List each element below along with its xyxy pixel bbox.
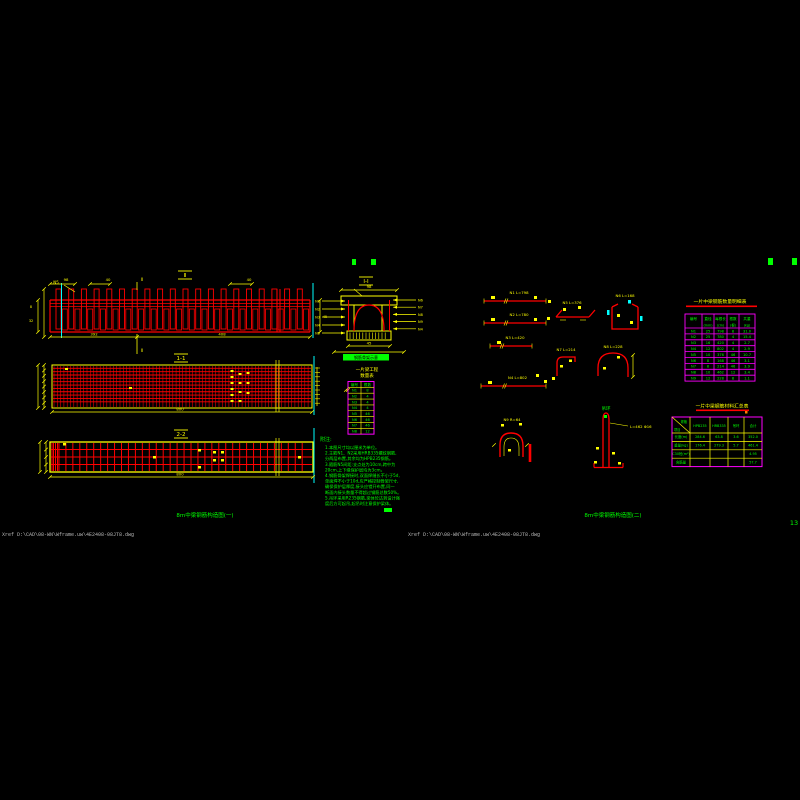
rect: [126, 309, 131, 330]
bar-mark: [63, 443, 66, 446]
cell: N9: [691, 377, 697, 381]
beam-elevation: 984040ⅡN5ⅡⅡ39240883245: [29, 271, 327, 354]
section-label: 1-1: [177, 356, 186, 362]
rect: [297, 289, 302, 329]
cell: 462: [717, 371, 724, 375]
green-tag: 钢筋骨架示意: [343, 354, 389, 361]
mini-table-title: 数量表: [360, 372, 374, 379]
diaphragm-mark: [239, 373, 242, 375]
cell: 46: [731, 353, 736, 357]
rect: [240, 309, 245, 330]
dim-text: L=462 Φ16: [630, 424, 652, 429]
rect: [75, 309, 80, 330]
corner: 项目: [674, 428, 680, 432]
path: [612, 304, 638, 329]
notes-title: 附注:: [320, 436, 332, 443]
path: [341, 300, 345, 303]
table-title: 一片中梁钢筋数量明细表: [694, 298, 747, 305]
dim-text: 32: [29, 319, 33, 323]
diaphragm-mark: [231, 388, 234, 390]
path: [556, 310, 595, 317]
dim-text: 800: [176, 472, 184, 477]
rect: [227, 309, 232, 330]
bar-mark: [617, 356, 620, 359]
path: [393, 306, 397, 309]
rect: [189, 309, 194, 330]
cell: 176.4: [695, 444, 705, 448]
cell: 3.6: [733, 435, 738, 439]
cell: 根数: [364, 382, 372, 387]
rect: [291, 309, 296, 330]
rect: [177, 309, 182, 330]
cell: N6: [352, 418, 358, 422]
diaphragm-mark: [231, 394, 234, 396]
cell: 31.0: [743, 329, 752, 333]
cell: 3.9: [744, 365, 750, 369]
diaphragm-mark: [231, 400, 234, 402]
line: [610, 423, 628, 426]
cell: 8: [732, 377, 735, 381]
rect: [215, 309, 220, 330]
rect: [69, 289, 74, 329]
cell: 12: [706, 377, 711, 381]
green-stamp: [371, 259, 376, 265]
cell: 376: [717, 353, 725, 357]
th: 直径: [704, 316, 712, 321]
cell: 含筋量: [676, 459, 687, 464]
cell: 5.7: [733, 444, 738, 448]
cell: 228: [717, 377, 725, 381]
path: [393, 313, 397, 316]
dim-text: 800: [176, 407, 184, 412]
rect: [278, 309, 283, 330]
bar-mark: [534, 296, 537, 299]
th: 每根长: [715, 316, 726, 321]
xref-path-right: Xref D:\CAD\08-WN\Wframe.uw\4E2408-08JT8…: [408, 532, 540, 538]
bar-mark: [213, 451, 216, 454]
rect: [164, 309, 169, 330]
material-summary-table: 一片中梁钢筋材料汇总表规格项目HPB235HRB335吊环合计长度(m)284.…: [672, 403, 762, 467]
rect: [56, 289, 61, 329]
rebar-callout: N6: [418, 299, 423, 303]
bar-mark: [596, 447, 599, 450]
path: [500, 433, 523, 457]
title-underline: [696, 410, 749, 412]
cyan-mark: [640, 316, 643, 321]
dim-text: 392: [90, 332, 98, 337]
bar-mark: [617, 314, 620, 317]
cell: N6: [691, 359, 697, 363]
cell: 3.1: [744, 359, 750, 363]
bar-mark: [630, 321, 633, 324]
cell: N1: [352, 389, 357, 393]
rebar-callout: N8: [418, 313, 423, 317]
rebar-callout: N5: [315, 332, 320, 336]
cut-mark: Ⅱ: [141, 348, 143, 353]
shape-label: N6 L=168: [615, 293, 635, 298]
cell: 16: [706, 341, 711, 345]
line: [64, 285, 75, 292]
bar-mark: [563, 308, 566, 311]
dim-text: 40: [247, 277, 252, 282]
section-label: 2-2: [177, 432, 186, 438]
cell: N3: [352, 400, 357, 404]
xref-path-left: Xref D:\CAD\08-WN\Wframe.uw\4E2408-08JT8…: [2, 532, 134, 538]
cell: 10.7: [743, 353, 751, 357]
bar-mark: [213, 459, 216, 462]
diaphragm-mark: [247, 392, 250, 394]
rebar-callout: N2: [315, 308, 320, 312]
rect: [208, 289, 213, 329]
cell: 4: [366, 406, 369, 410]
green-stamp: [352, 259, 356, 265]
rect: [170, 289, 175, 329]
shape-label: N3 L=420: [505, 335, 525, 340]
shape-label: N4 L=802: [508, 375, 528, 380]
cell: 25: [706, 335, 711, 339]
rect: [253, 309, 258, 330]
rebar-callout: N3: [315, 316, 320, 320]
dim-text: 98: [64, 277, 69, 282]
cell: 46: [365, 412, 370, 416]
cell: 8: [366, 389, 369, 393]
rect: [151, 309, 156, 330]
diaphragm-mark: [231, 382, 234, 384]
cell: 10: [706, 353, 711, 357]
shape-label: N7 L=214: [556, 347, 576, 352]
bar-mark: [552, 377, 555, 380]
cell: 4: [366, 394, 369, 398]
cell: 46: [731, 359, 736, 363]
cell: N8: [352, 430, 358, 434]
rebar-callout: N1: [315, 300, 320, 304]
cell: 25: [706, 329, 711, 333]
th: 吊环: [733, 424, 740, 428]
path: [557, 357, 575, 376]
rect: [183, 289, 188, 329]
diaphragm-mark: [239, 382, 242, 384]
rect: [221, 289, 226, 329]
rect: [341, 296, 397, 305]
cell: 57.7: [749, 460, 757, 464]
bar-mark: [153, 456, 156, 459]
cad-canvas: 984040ⅡN5ⅡⅡ392408832451-18002-2800Ⅰ-ⅠN1N…: [0, 0, 800, 800]
orange-mark: [745, 411, 748, 414]
th: (根): [730, 323, 736, 328]
shape-label: N2 L=780: [509, 312, 529, 317]
cell: C30砼(m³): [672, 451, 690, 456]
green-mark: [604, 415, 607, 418]
cell: 2.9: [744, 347, 750, 351]
cut-mark: Ⅱ: [141, 277, 143, 282]
bar-mark: [221, 451, 224, 454]
title-underline: [686, 306, 757, 308]
th: 合计: [750, 423, 757, 428]
bar-mark: [221, 459, 224, 462]
cell: 46: [731, 365, 736, 369]
bar-mark: [491, 296, 495, 299]
th: 根数: [729, 316, 737, 321]
lift-loop-label: 吊环: [602, 406, 611, 412]
shape-label: N8 L=228: [603, 344, 623, 349]
dim-text: 45: [367, 341, 372, 346]
shape-label: N5 L=376: [562, 300, 582, 305]
cell: 46: [365, 418, 370, 422]
cell: 编号: [351, 382, 359, 387]
dim-text: 40: [106, 277, 111, 282]
cell: 352.0: [748, 435, 758, 439]
path: [341, 308, 345, 311]
rect: [234, 289, 239, 329]
cell: N7: [352, 424, 357, 428]
cell: 4: [732, 341, 735, 345]
notes-line: 度后方可起吊,起吊时注意保护梁体。: [325, 500, 393, 507]
rect: [113, 309, 118, 330]
cell: N4: [352, 406, 358, 410]
diaphragm-mark: [129, 387, 132, 389]
cyan-mark: [628, 300, 631, 304]
rect: [202, 309, 207, 330]
cad-drawing-sheet: 984040ⅡN5ⅡⅡ392408832451-18002-2800Ⅰ-ⅠN1N…: [0, 0, 800, 800]
leader-label: N5: [53, 280, 59, 285]
diaphragm-mark: [239, 391, 242, 393]
bar-mark: [536, 374, 539, 377]
diaphragm-mark: [231, 370, 234, 372]
path: [393, 327, 397, 330]
mini-quantity-table: 一片梁工程数量表编号根数N18N24N34N44N546N646N746N812: [348, 366, 379, 434]
rect: [272, 289, 277, 329]
rect: [266, 309, 271, 330]
cell: 10: [706, 371, 711, 375]
cell: 8: [707, 359, 710, 363]
rect: [158, 289, 163, 329]
cell: N1: [691, 329, 696, 333]
green-tag-text: 钢筋骨架示意: [354, 354, 378, 360]
bar-mark: [569, 360, 572, 363]
th: 编号: [690, 316, 698, 321]
bar-mark: [618, 462, 621, 465]
green-stamp: [792, 258, 797, 265]
cell: N4: [691, 347, 697, 351]
bar-mark: [198, 449, 201, 452]
path: [504, 438, 519, 456]
bar-mark: [534, 318, 537, 321]
cell: 4: [732, 335, 735, 339]
diaphragm-mark: [247, 382, 250, 384]
path: [341, 332, 345, 335]
cell: 长度(m): [675, 434, 688, 439]
rebar-callout: N9: [418, 320, 423, 324]
th: (cm): [717, 324, 725, 328]
page-number: 13: [790, 519, 798, 527]
th: HPB235: [693, 424, 706, 428]
bar-mark: [548, 300, 551, 303]
cell: 168: [717, 359, 725, 363]
corner: 规格: [681, 419, 688, 424]
bar-mark: [578, 306, 581, 309]
bar-mark: [298, 456, 301, 459]
rect: [196, 289, 201, 329]
dim-text: 98: [367, 284, 372, 289]
th: HRB335: [712, 424, 726, 428]
path: [393, 320, 397, 323]
rebar-plan-dense: 1-1800: [36, 354, 320, 415]
line: [492, 443, 496, 447]
cell: N8: [691, 371, 697, 375]
section-label: Ⅱ: [184, 273, 187, 279]
cell: 12: [731, 371, 736, 375]
bar-mark: [491, 318, 495, 321]
shape-label: N1 L=798: [509, 290, 529, 295]
cell: 798: [717, 329, 725, 333]
cyan-mark: [607, 310, 610, 315]
cell: 780: [717, 335, 725, 339]
diaphragm-mark: [231, 376, 234, 378]
path: [393, 299, 397, 302]
rebar-callout: N4: [418, 327, 424, 331]
cell: 2.7: [744, 341, 750, 345]
th: (kg): [744, 324, 751, 328]
cell: 15.4: [743, 335, 752, 339]
cell: N5: [691, 353, 696, 357]
diaphragm-mark: [65, 368, 68, 370]
rect: [62, 309, 67, 330]
cell: 284.6: [695, 435, 705, 439]
rect: [145, 289, 150, 329]
dim-text: 408: [218, 332, 226, 337]
cell: 4.95: [749, 452, 757, 456]
line: [525, 443, 529, 447]
mini-table-title: 一片梁工程: [356, 366, 379, 373]
path: [341, 316, 345, 319]
rebar-shape-details: N1 L=798N2 L=780N3 L=420N4 L=802N5 L=376…: [481, 290, 652, 468]
cell: N3: [691, 341, 696, 345]
cell: 63.8: [715, 435, 723, 439]
bar-mark: [594, 461, 597, 464]
rebar-callout: N7: [418, 306, 423, 310]
cell: 12: [365, 430, 370, 434]
diaphragm-mark: [239, 400, 242, 402]
bar-mark: [508, 449, 511, 452]
rect: [120, 289, 125, 329]
shape-label: N9 R=64: [503, 417, 521, 422]
table-title: 一片中梁钢筋材料汇总表: [696, 403, 749, 410]
drawing-title-right: 8m中梁钢筋构造图(二): [553, 513, 673, 520]
cell: 461.4: [748, 444, 758, 448]
cell: 214: [717, 365, 725, 369]
bar-mark: [544, 380, 547, 383]
cell: 4: [366, 400, 369, 404]
rect: [100, 309, 105, 330]
cell: 279.3: [714, 444, 724, 448]
drawing-title-left: 8m中梁钢筋构造图(一): [145, 513, 265, 520]
cell: 420: [717, 341, 725, 345]
cell: 46: [365, 424, 370, 428]
bar-mark: [519, 423, 522, 426]
bar-mark: [603, 367, 606, 370]
bar-mark: [612, 452, 615, 455]
dim-text: 8: [30, 305, 32, 309]
rect: [81, 289, 86, 329]
cell: N7: [691, 365, 696, 369]
sheet-marks: 13: [384, 258, 798, 527]
rect: [304, 309, 309, 330]
cell: 重量(kg): [674, 443, 688, 448]
cell: 8: [732, 329, 735, 333]
rect: [132, 289, 137, 329]
rect: [259, 289, 264, 329]
rect: [139, 309, 144, 330]
bar-mark: [560, 365, 563, 368]
cell: 1.1: [744, 377, 750, 381]
cell: 802: [717, 347, 724, 351]
bar-mark: [501, 424, 504, 427]
rect: [107, 289, 112, 329]
bar-mark: [198, 466, 201, 469]
green-stamp: [768, 258, 773, 265]
path: [341, 324, 345, 327]
rebar-callout: N4: [315, 324, 321, 328]
cell: N2: [352, 394, 357, 398]
bar-mark: [547, 317, 550, 320]
cell: N5: [352, 412, 357, 416]
green-stamp: [384, 508, 392, 512]
th: (mm): [704, 324, 713, 328]
rebar-schedule-table: 一片中梁钢筋数量明细表编号直径每根长根数共重(mm)(cm)(根)(kg)N12…: [685, 298, 757, 381]
path: [603, 413, 609, 467]
bar-mark: [497, 341, 501, 344]
cell: 4: [732, 347, 735, 351]
bar-mark: [488, 381, 492, 384]
rect: [88, 309, 93, 330]
cell: 3.4: [744, 371, 750, 375]
rect: [285, 289, 290, 329]
notes-block: 附注:1.本图尺寸均以厘米为单位。2.主筋N1、N2采用HRB335螺纹钢筋, …: [320, 436, 401, 507]
rebar-plan-grid: 2-2800: [38, 428, 315, 483]
cell: 8: [707, 365, 710, 369]
cell: N2: [691, 335, 696, 339]
th: 共重: [743, 316, 751, 321]
rect: [247, 289, 252, 329]
cell: 12: [706, 347, 711, 351]
diaphragm-mark: [247, 372, 250, 374]
rect: [94, 289, 99, 329]
path: [354, 305, 384, 331]
path: [598, 353, 628, 377]
